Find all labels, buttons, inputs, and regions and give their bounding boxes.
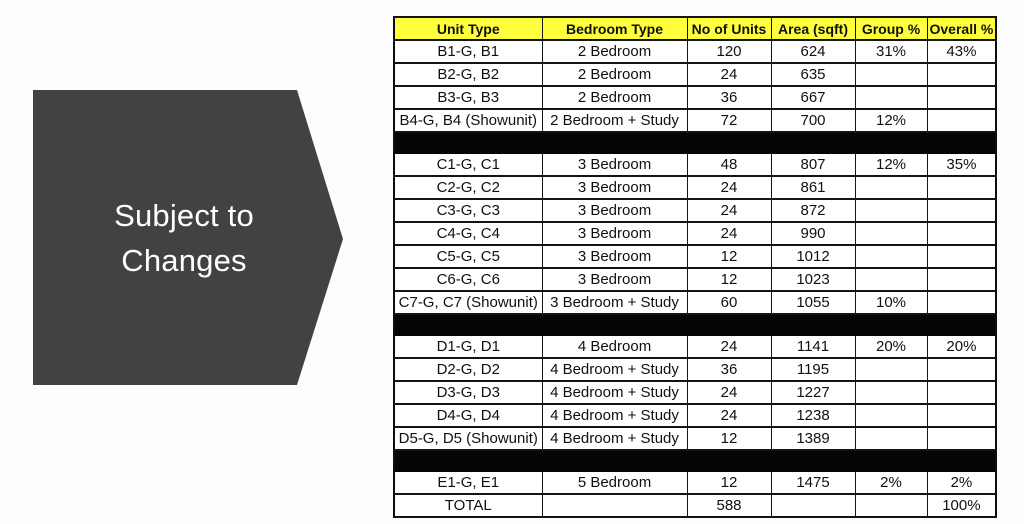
cell-unit-type: C3-G, C3 xyxy=(394,199,542,222)
cell-no-of-units: 24 xyxy=(687,404,771,427)
cell-bedroom-type: 3 Bedroom xyxy=(542,176,687,199)
cell-area-sqft: 1227 xyxy=(771,381,855,404)
unit-mix-table-container: Unit Type Bedroom Type No of Units Area … xyxy=(393,16,997,518)
table-row: B4-G, B4 (Showunit)2 Bedroom + Study7270… xyxy=(394,109,996,132)
cell-group-pct: 2% xyxy=(855,471,927,494)
cell-no-of-units: 36 xyxy=(687,86,771,109)
cell-no-of-units: 24 xyxy=(687,176,771,199)
callout-text-line2: Changes xyxy=(121,238,247,283)
cell-area-sqft: 1475 xyxy=(771,471,855,494)
cell-area-sqft: 1012 xyxy=(771,245,855,268)
cell-unit-type: D1-G, D1 xyxy=(394,335,542,358)
cell-area-sqft: 872 xyxy=(771,199,855,222)
cell-overall-pct: 100% xyxy=(927,494,996,517)
cell-group-pct xyxy=(855,358,927,381)
cell-overall-pct xyxy=(927,176,996,199)
table-row: D2-G, D24 Bedroom + Study361195 xyxy=(394,358,996,381)
section-divider-row xyxy=(394,314,996,335)
cell-area-sqft xyxy=(771,494,855,517)
cell-unit-type: TOTAL xyxy=(394,494,542,517)
cell-area-sqft: 624 xyxy=(771,40,855,63)
section-divider-row xyxy=(394,450,996,471)
table-row: D5-G, D5 (Showunit)4 Bedroom + Study1213… xyxy=(394,427,996,450)
cell-overall-pct xyxy=(927,109,996,132)
cell-bedroom-type: 3 Bedroom xyxy=(542,222,687,245)
cell-overall-pct xyxy=(927,427,996,450)
cell-overall-pct xyxy=(927,358,996,381)
table-row: B1-G, B12 Bedroom12062431%43% xyxy=(394,40,996,63)
cell-bedroom-type: 3 Bedroom xyxy=(542,245,687,268)
cell-no-of-units: 588 xyxy=(687,494,771,517)
cell-area-sqft: 1389 xyxy=(771,427,855,450)
cell-unit-type: C5-G, C5 xyxy=(394,245,542,268)
cell-overall-pct xyxy=(927,381,996,404)
cell-unit-type: C4-G, C4 xyxy=(394,222,542,245)
cell-no-of-units: 60 xyxy=(687,291,771,314)
cell-overall-pct xyxy=(927,199,996,222)
header-area-sqft: Area (sqft) xyxy=(771,17,855,40)
cell-area-sqft: 807 xyxy=(771,153,855,176)
cell-no-of-units: 12 xyxy=(687,471,771,494)
cell-unit-type: C2-G, C2 xyxy=(394,176,542,199)
cell-overall-pct: 2% xyxy=(927,471,996,494)
cell-overall-pct xyxy=(927,222,996,245)
cell-group-pct xyxy=(855,404,927,427)
slide-frame: Subject to Changes Unit Type Bedroom Typ… xyxy=(0,0,1024,524)
cell-unit-type: E1-G, E1 xyxy=(394,471,542,494)
cell-bedroom-type: 4 Bedroom xyxy=(542,335,687,358)
header-bedroom-type: Bedroom Type xyxy=(542,17,687,40)
header-unit-type: Unit Type xyxy=(394,17,542,40)
cell-no-of-units: 48 xyxy=(687,153,771,176)
cell-unit-type: B4-G, B4 (Showunit) xyxy=(394,109,542,132)
cell-bedroom-type: 2 Bedroom xyxy=(542,40,687,63)
cell-unit-type: C6-G, C6 xyxy=(394,268,542,291)
cell-unit-type: C1-G, C1 xyxy=(394,153,542,176)
cell-overall-pct xyxy=(927,245,996,268)
cell-group-pct xyxy=(855,245,927,268)
cell-unit-type: D2-G, D2 xyxy=(394,358,542,381)
cell-no-of-units: 36 xyxy=(687,358,771,381)
cell-area-sqft: 861 xyxy=(771,176,855,199)
cell-area-sqft: 1023 xyxy=(771,268,855,291)
table-row: TOTAL588100% xyxy=(394,494,996,517)
header-group-pct: Group % xyxy=(855,17,927,40)
cell-no-of-units: 72 xyxy=(687,109,771,132)
cell-bedroom-type: 3 Bedroom xyxy=(542,153,687,176)
section-divider xyxy=(394,132,996,153)
table-row: C6-G, C63 Bedroom121023 xyxy=(394,268,996,291)
unit-mix-table: Unit Type Bedroom Type No of Units Area … xyxy=(393,16,997,518)
cell-bedroom-type: 4 Bedroom + Study xyxy=(542,358,687,381)
cell-group-pct xyxy=(855,268,927,291)
cell-no-of-units: 12 xyxy=(687,245,771,268)
cell-group-pct xyxy=(855,86,927,109)
cell-bedroom-type: 3 Bedroom xyxy=(542,268,687,291)
cell-group-pct: 12% xyxy=(855,109,927,132)
callout-text-line1: Subject to xyxy=(114,193,254,238)
table-header-row: Unit Type Bedroom Type No of Units Area … xyxy=(394,17,996,40)
cell-unit-type: B2-G, B2 xyxy=(394,63,542,86)
cell-unit-type: C7-G, C7 (Showunit) xyxy=(394,291,542,314)
table-row: B2-G, B22 Bedroom24635 xyxy=(394,63,996,86)
cell-no-of-units: 24 xyxy=(687,63,771,86)
cell-group-pct: 10% xyxy=(855,291,927,314)
cell-group-pct: 31% xyxy=(855,40,927,63)
cell-area-sqft: 635 xyxy=(771,63,855,86)
cell-overall-pct: 35% xyxy=(927,153,996,176)
cell-area-sqft: 1141 xyxy=(771,335,855,358)
cell-overall-pct xyxy=(927,404,996,427)
cell-group-pct xyxy=(855,222,927,245)
cell-group-pct xyxy=(855,176,927,199)
table-row: C1-G, C13 Bedroom4880712%35% xyxy=(394,153,996,176)
cell-overall-pct: 20% xyxy=(927,335,996,358)
cell-bedroom-type: 2 Bedroom + Study xyxy=(542,109,687,132)
cell-group-pct xyxy=(855,427,927,450)
cell-group-pct xyxy=(855,381,927,404)
cell-bedroom-type xyxy=(542,494,687,517)
section-divider-row xyxy=(394,132,996,153)
section-divider xyxy=(394,450,996,471)
callout-text: Subject to Changes xyxy=(33,90,323,385)
cell-area-sqft: 1195 xyxy=(771,358,855,381)
table-row: D3-G, D34 Bedroom + Study241227 xyxy=(394,381,996,404)
cell-overall-pct xyxy=(927,86,996,109)
cell-unit-type: D5-G, D5 (Showunit) xyxy=(394,427,542,450)
cell-overall-pct xyxy=(927,268,996,291)
cell-bedroom-type: 4 Bedroom + Study xyxy=(542,404,687,427)
cell-area-sqft: 700 xyxy=(771,109,855,132)
cell-bedroom-type: 2 Bedroom xyxy=(542,63,687,86)
cell-no-of-units: 12 xyxy=(687,268,771,291)
unit-table-body: B1-G, B12 Bedroom12062431%43%B2-G, B22 B… xyxy=(394,40,996,517)
cell-group-pct xyxy=(855,494,927,517)
table-row: C7-G, C7 (Showunit)3 Bedroom + Study6010… xyxy=(394,291,996,314)
cell-no-of-units: 12 xyxy=(687,427,771,450)
cell-bedroom-type: 3 Bedroom + Study xyxy=(542,291,687,314)
cell-no-of-units: 24 xyxy=(687,335,771,358)
cell-group-pct: 20% xyxy=(855,335,927,358)
cell-no-of-units: 24 xyxy=(687,222,771,245)
table-row: D1-G, D14 Bedroom24114120%20% xyxy=(394,335,996,358)
cell-area-sqft: 667 xyxy=(771,86,855,109)
cell-no-of-units: 24 xyxy=(687,199,771,222)
cell-unit-type: B3-G, B3 xyxy=(394,86,542,109)
cell-unit-type: D3-G, D3 xyxy=(394,381,542,404)
cell-no-of-units: 120 xyxy=(687,40,771,63)
cell-area-sqft: 990 xyxy=(771,222,855,245)
cell-unit-type: D4-G, D4 xyxy=(394,404,542,427)
table-row: B3-G, B32 Bedroom36667 xyxy=(394,86,996,109)
cell-bedroom-type: 4 Bedroom + Study xyxy=(542,427,687,450)
cell-area-sqft: 1055 xyxy=(771,291,855,314)
table-row: C4-G, C43 Bedroom24990 xyxy=(394,222,996,245)
cell-bedroom-type: 4 Bedroom + Study xyxy=(542,381,687,404)
subject-to-changes-callout: Subject to Changes xyxy=(33,90,343,385)
table-row: C3-G, C33 Bedroom24872 xyxy=(394,199,996,222)
table-row: C5-G, C53 Bedroom121012 xyxy=(394,245,996,268)
cell-unit-type: B1-G, B1 xyxy=(394,40,542,63)
cell-overall-pct xyxy=(927,63,996,86)
header-overall-pct: Overall % xyxy=(927,17,996,40)
cell-no-of-units: 24 xyxy=(687,381,771,404)
table-row: C2-G, C23 Bedroom24861 xyxy=(394,176,996,199)
cell-bedroom-type: 2 Bedroom xyxy=(542,86,687,109)
cell-group-pct xyxy=(855,63,927,86)
header-no-of-units: No of Units xyxy=(687,17,771,40)
cell-overall-pct xyxy=(927,291,996,314)
cell-overall-pct: 43% xyxy=(927,40,996,63)
section-divider xyxy=(394,314,996,335)
cell-bedroom-type: 5 Bedroom xyxy=(542,471,687,494)
cell-area-sqft: 1238 xyxy=(771,404,855,427)
cell-group-pct xyxy=(855,199,927,222)
cell-bedroom-type: 3 Bedroom xyxy=(542,199,687,222)
table-row: E1-G, E15 Bedroom1214752%2% xyxy=(394,471,996,494)
table-row: D4-G, D44 Bedroom + Study241238 xyxy=(394,404,996,427)
cell-group-pct: 12% xyxy=(855,153,927,176)
